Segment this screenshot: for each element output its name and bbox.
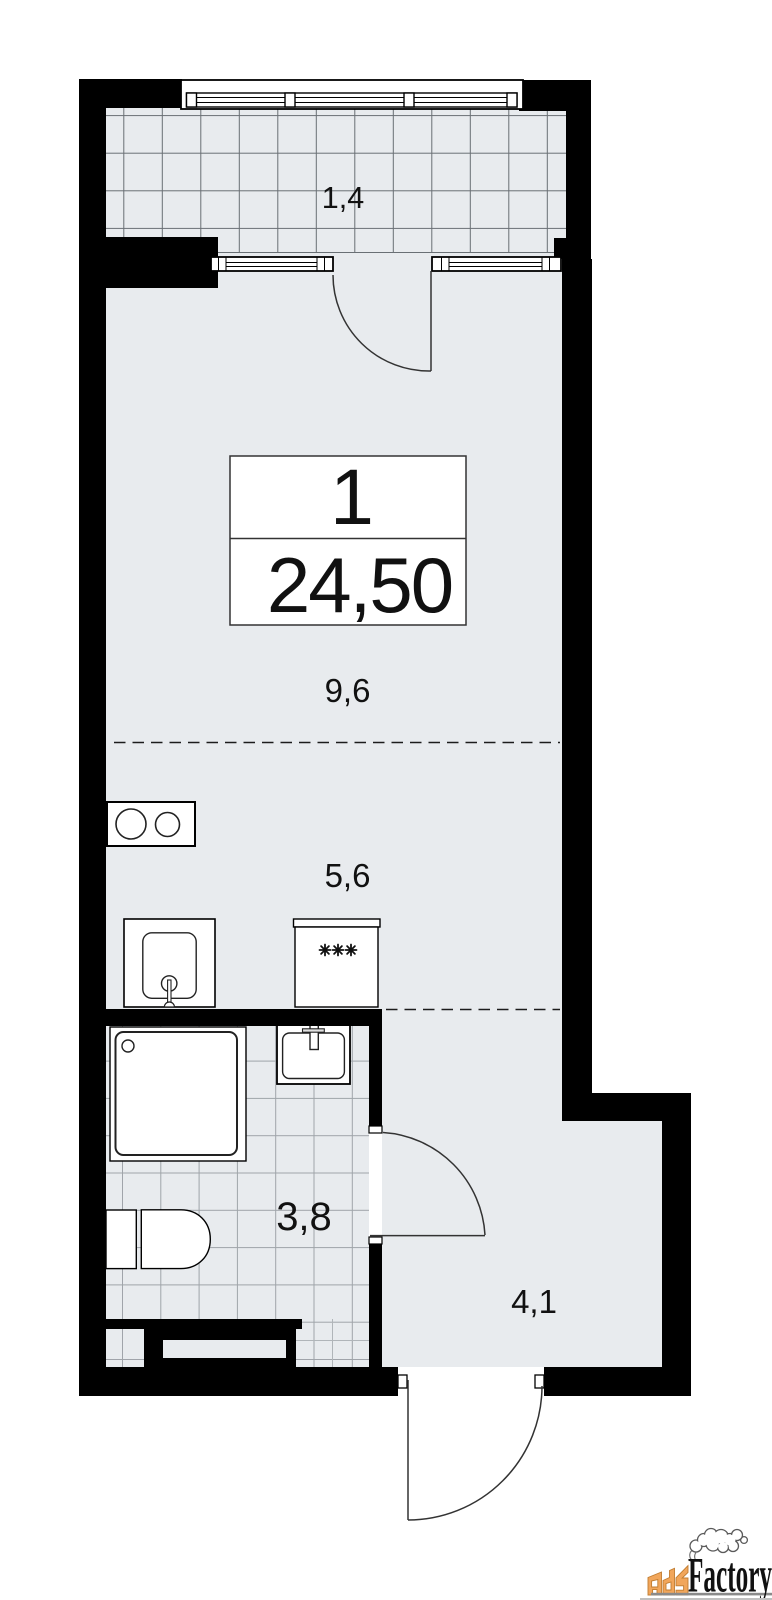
svg-text:4,1: 4,1 [511, 1283, 557, 1320]
svg-text:1: 1 [330, 452, 374, 541]
svg-text:9,6: 9,6 [325, 672, 371, 709]
svg-text:Factory: Factory [688, 1547, 772, 1600]
svg-text:5,6: 5,6 [325, 857, 371, 894]
svg-text:1,4: 1,4 [322, 181, 364, 215]
svg-text:3,8: 3,8 [276, 1195, 332, 1239]
svg-text:24,50: 24,50 [267, 541, 452, 629]
